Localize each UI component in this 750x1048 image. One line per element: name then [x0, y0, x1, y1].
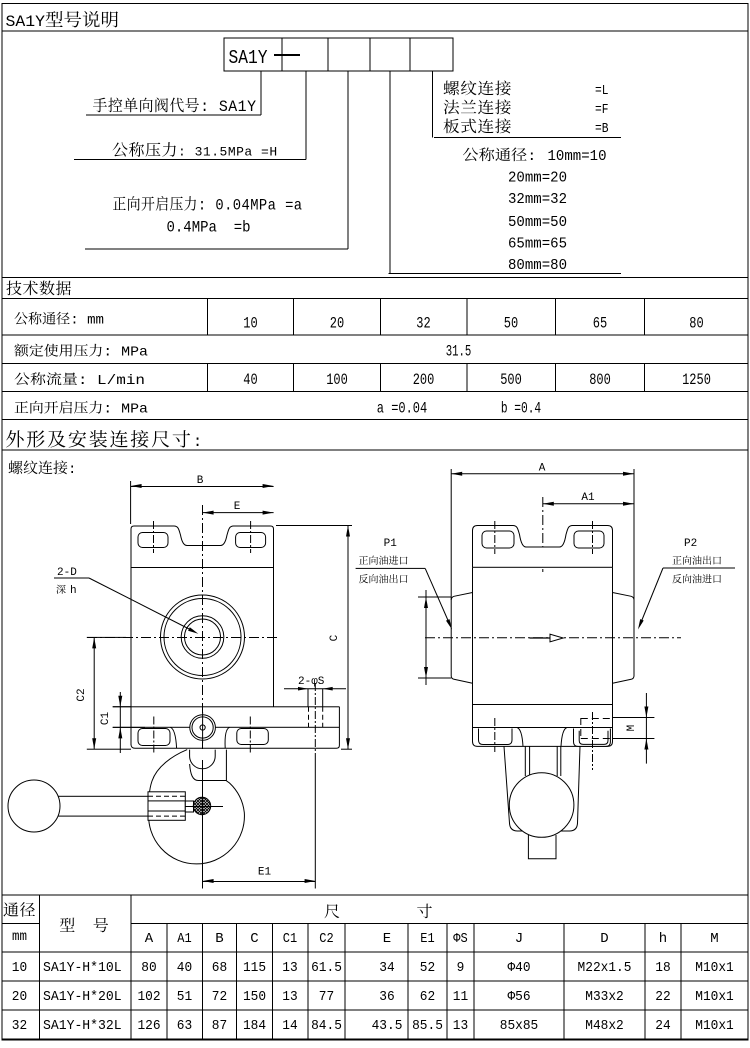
svg-text:a =0.04: a =0.04 — [377, 400, 427, 418]
svg-text:A: A — [145, 931, 154, 947]
svg-text:14: 14 — [282, 1018, 297, 1034]
svg-text:0.4MPa =b: 0.4MPa =b — [167, 219, 251, 237]
svg-text:150: 150 — [243, 989, 266, 1005]
svg-text:62: 62 — [420, 989, 435, 1005]
svg-text:=F: =F — [595, 102, 609, 118]
svg-text:2-φS: 2-φS — [298, 676, 325, 688]
svg-text:13: 13 — [282, 989, 297, 1005]
svg-text:63: 63 — [177, 1018, 192, 1034]
svg-text:公称压力: 31.5MPa =H: 公称压力: 31.5MPa =H — [112, 138, 278, 161]
svg-text:100: 100 — [326, 371, 348, 389]
svg-text:85x85: 85x85 — [500, 1018, 539, 1034]
svg-text:D: D — [600, 931, 608, 947]
svg-text:80: 80 — [689, 315, 703, 333]
svg-text:22: 22 — [655, 989, 670, 1005]
svg-text:11: 11 — [453, 989, 468, 1005]
svg-text:40: 40 — [243, 371, 257, 389]
svg-text:31.5: 31.5 — [446, 343, 472, 361]
svg-text:1250: 1250 — [682, 371, 711, 389]
svg-text:M10x1: M10x1 — [695, 989, 734, 1005]
svg-text:Φ40: Φ40 — [507, 960, 530, 976]
svg-text:公称流量: L/min: 公称流量: L/min — [14, 369, 145, 389]
svg-text:M: M — [626, 725, 638, 732]
svg-text:板式连接: 板式连接 — [443, 114, 513, 137]
svg-text:A: A — [539, 463, 546, 475]
svg-text:寸: 寸 — [417, 899, 434, 922]
svg-text:正向开启压力: MPa: 正向开启压力: MPa — [14, 398, 148, 418]
svg-text:正向开启压力: 0.04MPa =a: 正向开启压力: 0.04MPa =a — [113, 192, 303, 215]
svg-text:77: 77 — [319, 989, 334, 1005]
svg-text:65mm=65: 65mm=65 — [508, 236, 567, 253]
svg-text:43.5: 43.5 — [372, 1018, 403, 1034]
svg-text:M10x1: M10x1 — [695, 1018, 734, 1034]
svg-text:52: 52 — [420, 960, 435, 976]
svg-text:M33x2: M33x2 — [585, 989, 624, 1005]
svg-text:2-D: 2-D — [57, 567, 77, 579]
svg-text:13: 13 — [282, 960, 297, 976]
svg-text:72: 72 — [212, 989, 227, 1005]
svg-text:C2: C2 — [76, 688, 88, 701]
svg-text:32mm=32: 32mm=32 — [508, 191, 567, 208]
svg-text:50mm=50: 50mm=50 — [508, 214, 567, 231]
svg-text:61.5: 61.5 — [311, 960, 342, 976]
svg-text:65: 65 — [593, 315, 607, 333]
svg-text:80mm=80: 80mm=80 — [508, 257, 567, 274]
svg-text:ΦS: ΦS — [453, 931, 467, 947]
svg-text:P1: P1 — [384, 538, 398, 550]
svg-text:Φ56: Φ56 — [507, 989, 530, 1005]
svg-text:SA1Y-H*20L: SA1Y-H*20L — [43, 989, 122, 1005]
svg-text:A1: A1 — [581, 492, 595, 504]
svg-text:C: C — [250, 931, 258, 947]
svg-text:126: 126 — [137, 1018, 160, 1034]
svg-text:51: 51 — [177, 989, 192, 1005]
svg-text:反向油出口: 反向油出口 — [359, 571, 409, 586]
svg-text:32: 32 — [12, 1018, 27, 1034]
svg-text:C: C — [329, 634, 341, 641]
svg-text:20: 20 — [330, 315, 344, 333]
svg-text:84.5: 84.5 — [311, 1018, 342, 1034]
svg-text:J: J — [515, 931, 523, 947]
svg-text:E1: E1 — [420, 931, 434, 947]
svg-text:型: 型 — [59, 913, 76, 936]
svg-text:E: E — [383, 931, 391, 947]
svg-text:公称通径: mm: 公称通径: mm — [14, 309, 104, 329]
svg-text:P2: P2 — [684, 538, 697, 550]
svg-text:M: M — [710, 931, 718, 947]
svg-text:18: 18 — [655, 960, 670, 976]
svg-text:10mm=10: 10mm=10 — [548, 148, 607, 165]
svg-text:36: 36 — [379, 989, 394, 1005]
svg-text:号: 号 — [93, 913, 110, 936]
svg-text:C1: C1 — [283, 931, 297, 947]
svg-text:80: 80 — [141, 960, 156, 976]
svg-text:20mm=20: 20mm=20 — [508, 170, 567, 187]
svg-text:正向油进口: 正向油进口 — [359, 552, 409, 567]
svg-text:500: 500 — [500, 371, 522, 389]
svg-text:外形及安装连接尺寸:: 外形及安装连接尺寸: — [6, 425, 205, 452]
svg-text:=L: =L — [595, 83, 609, 99]
svg-text:M22x1.5: M22x1.5 — [578, 960, 632, 976]
svg-text:115: 115 — [243, 960, 266, 976]
svg-text:手控单向阀代号: SA1Y: 手控单向阀代号: SA1Y — [93, 93, 257, 116]
svg-text:A1: A1 — [177, 931, 191, 947]
svg-text:=B: =B — [595, 121, 609, 137]
svg-text:20: 20 — [12, 989, 27, 1005]
svg-text:B: B — [215, 931, 223, 947]
svg-text:公称通径:: 公称通径: — [462, 144, 536, 165]
svg-text:SA1Y型号说明: SA1Y型号说明 — [6, 6, 120, 32]
svg-text:68: 68 — [212, 960, 227, 976]
svg-text:9: 9 — [457, 960, 465, 976]
svg-text:10: 10 — [12, 960, 27, 976]
svg-text:尺: 尺 — [324, 899, 341, 922]
svg-text:h: h — [70, 585, 77, 597]
svg-text:额定使用压力: MPa: 额定使用压力: MPa — [14, 341, 148, 361]
svg-text:102: 102 — [137, 989, 160, 1005]
svg-text:M48x2: M48x2 — [585, 1018, 624, 1034]
svg-text:SA1Y-H*32L: SA1Y-H*32L — [43, 1018, 122, 1034]
svg-text:40: 40 — [177, 960, 192, 976]
svg-text:深: 深 — [56, 581, 66, 596]
svg-text:E1: E1 — [258, 867, 272, 879]
svg-text:mm: mm — [12, 929, 27, 945]
svg-text:13: 13 — [453, 1018, 468, 1034]
svg-text:螺纹连接:: 螺纹连接: — [8, 457, 76, 478]
svg-text:24: 24 — [655, 1018, 670, 1034]
svg-text:M10x1: M10x1 — [695, 960, 734, 976]
svg-text:85.5: 85.5 — [412, 1018, 443, 1034]
svg-text:SA1Y-H*10L: SA1Y-H*10L — [43, 960, 122, 976]
svg-text:技术数据: 技术数据 — [6, 276, 72, 299]
svg-text:SA1Y: SA1Y — [229, 47, 269, 69]
svg-text:B: B — [197, 475, 204, 487]
svg-text:184: 184 — [243, 1018, 266, 1034]
svg-text:反向油进口: 反向油进口 — [672, 571, 722, 586]
svg-text:87: 87 — [212, 1018, 227, 1034]
svg-text:h: h — [659, 931, 667, 947]
svg-text:800: 800 — [589, 371, 611, 389]
svg-text:C1: C1 — [100, 712, 112, 726]
svg-text:b =0.4: b =0.4 — [501, 400, 541, 418]
svg-text:正向油出口: 正向油出口 — [672, 552, 722, 567]
svg-text:10: 10 — [243, 315, 257, 333]
svg-text:50: 50 — [504, 315, 518, 333]
svg-text:E: E — [234, 501, 241, 513]
svg-text:200: 200 — [413, 371, 435, 389]
svg-text:通径: 通径 — [3, 898, 36, 921]
svg-text:C2: C2 — [319, 931, 333, 947]
svg-text:34: 34 — [379, 960, 394, 976]
svg-text:32: 32 — [416, 315, 430, 333]
